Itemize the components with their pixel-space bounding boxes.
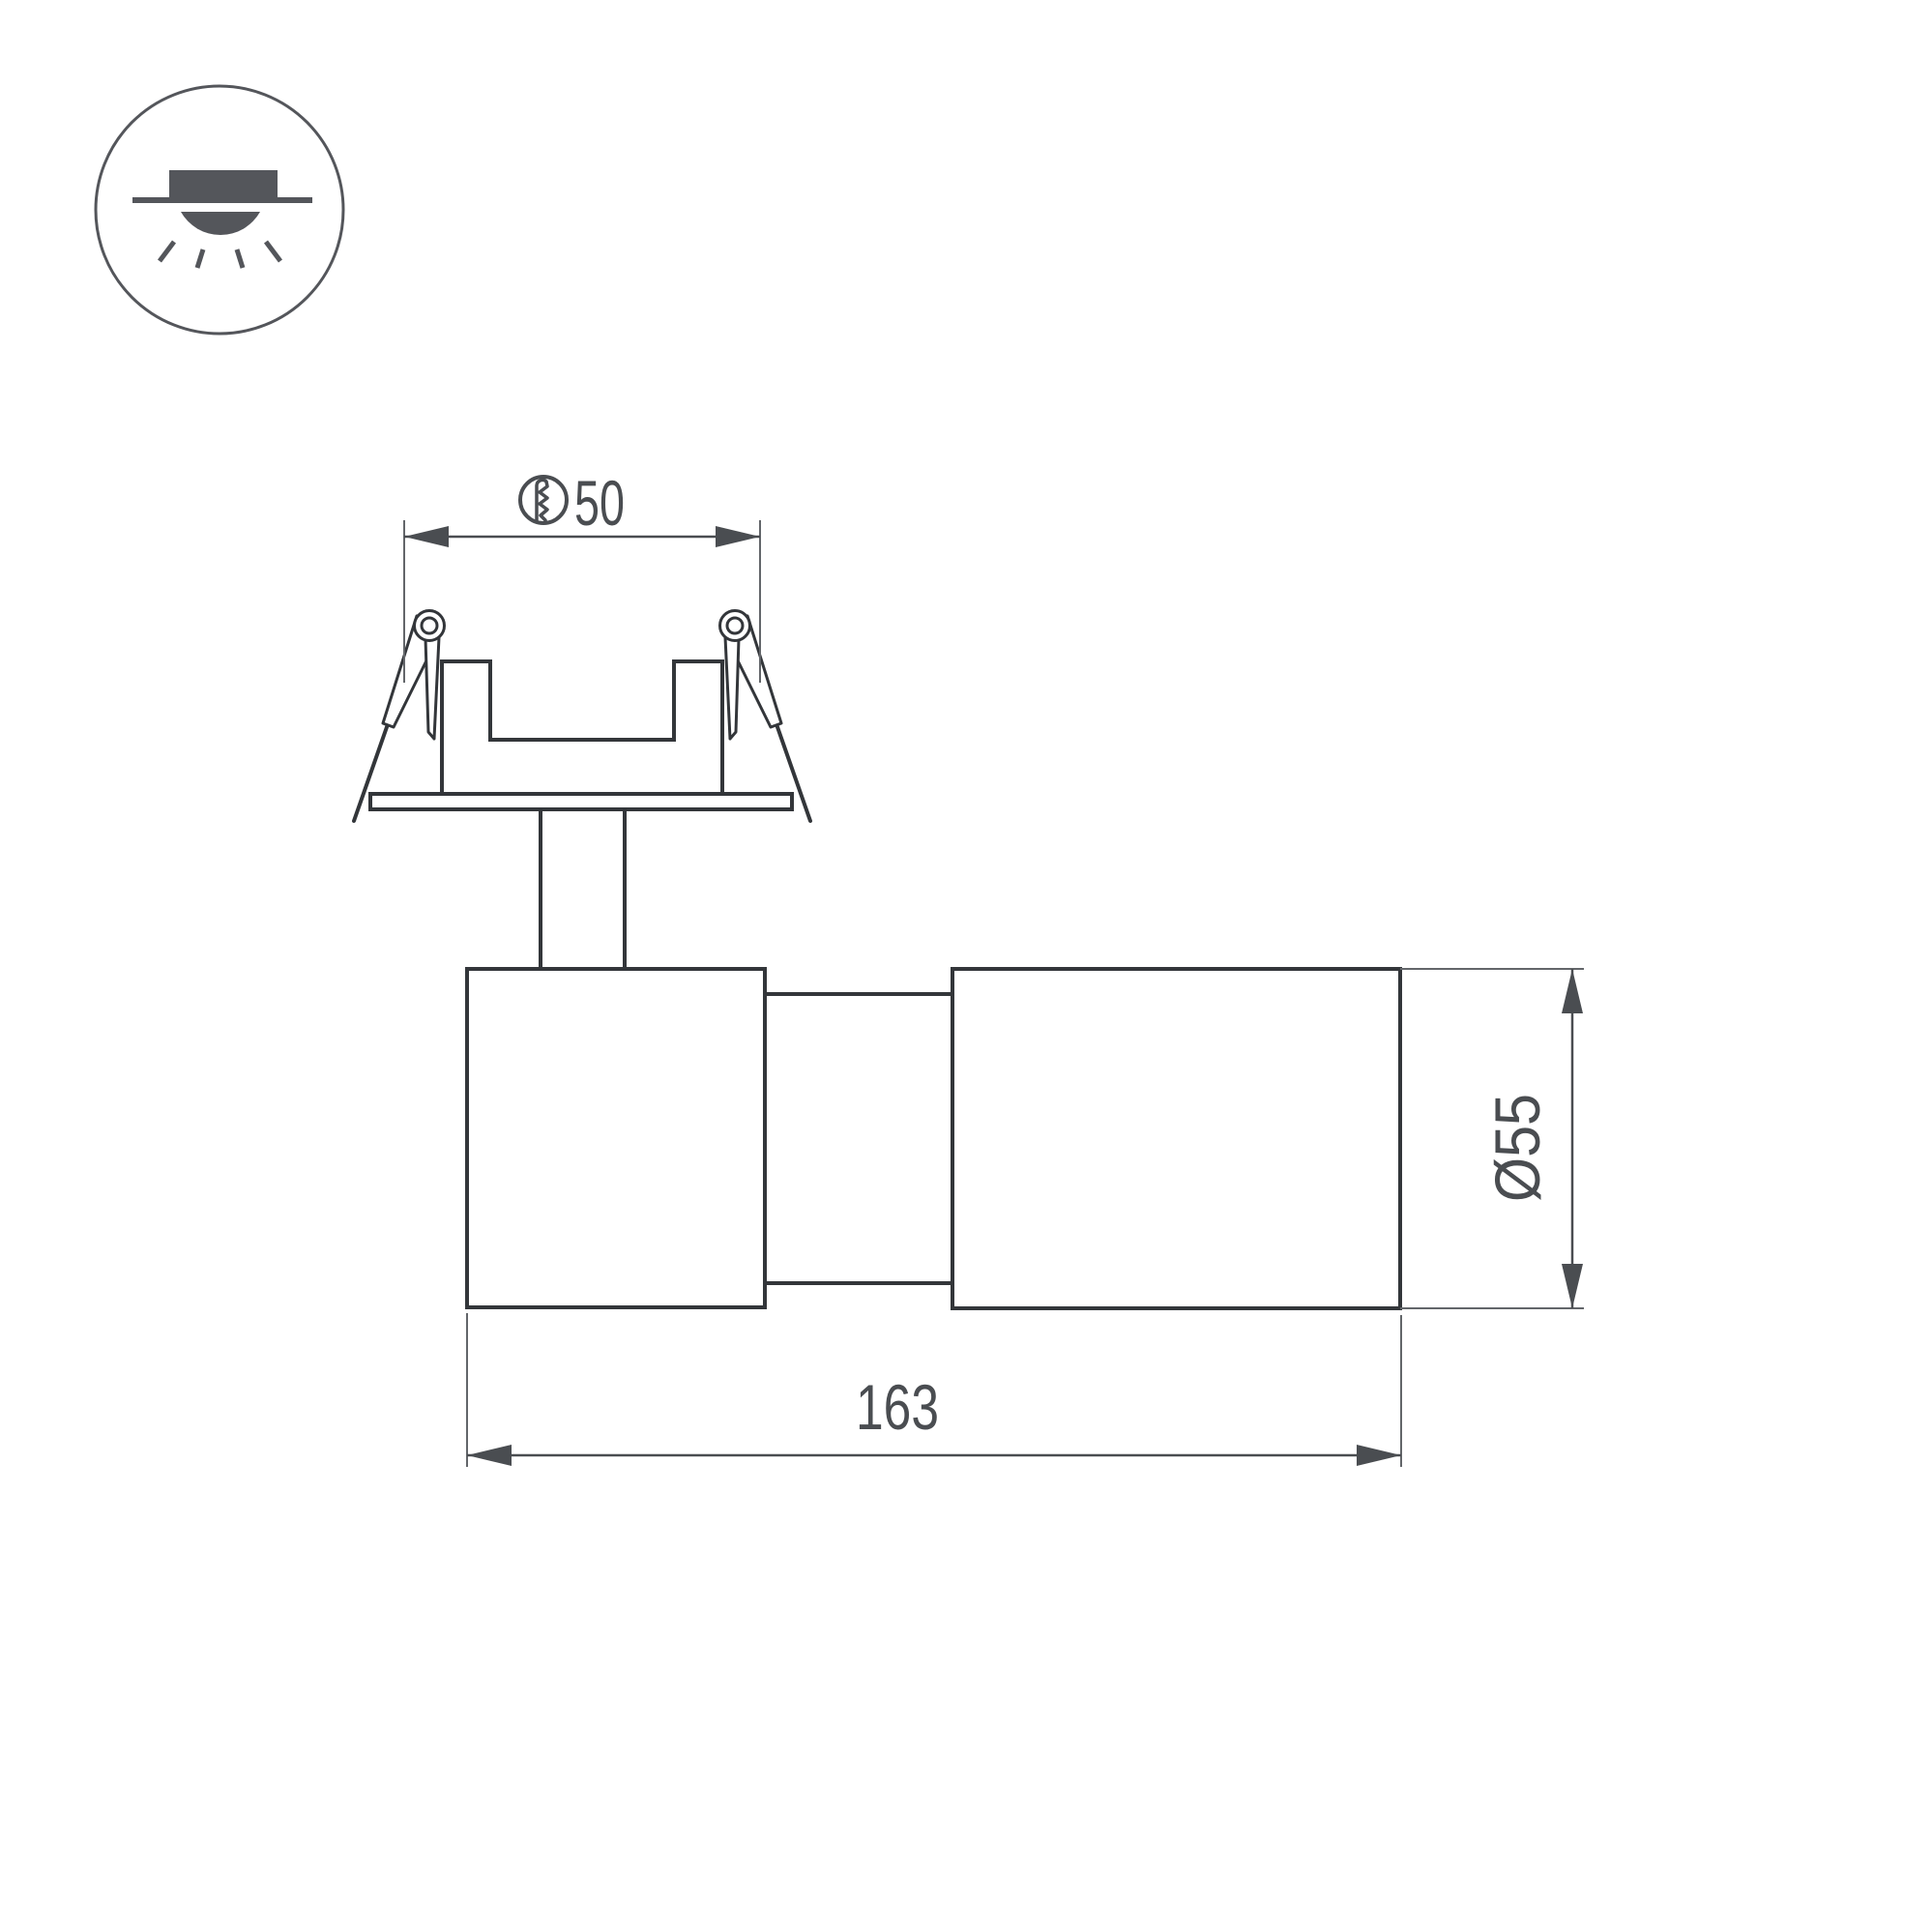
icon-badge-circle	[96, 86, 343, 334]
technical-drawing-canvas: 50 Ø55 163	[0, 0, 1932, 1932]
spring-clip-right	[720, 611, 811, 822]
icon-ceiling-line	[132, 197, 312, 203]
clip-inner-leg	[425, 637, 439, 739]
length-value-label: 163	[856, 1371, 939, 1443]
arrowhead-left-icon	[467, 1445, 512, 1466]
luminaire-side-view	[354, 611, 1400, 1309]
clip-pivot-hole	[727, 618, 743, 633]
light-ray-icon	[197, 249, 203, 268]
body-rear-section	[467, 969, 765, 1307]
recessed-downlight-icon	[96, 86, 343, 334]
clip-pivot-hole	[422, 618, 437, 633]
arrowhead-right-icon	[716, 526, 760, 547]
hole-saw-key-shape	[537, 480, 547, 522]
light-ray-icon	[237, 249, 243, 268]
arrowhead-left-icon	[404, 526, 449, 547]
arrowhead-up-icon	[1562, 969, 1583, 1013]
drawing-page: 50 Ø55 163	[0, 0, 1932, 1932]
diameter-value-label: Ø55	[1481, 1094, 1553, 1202]
mounting-cup-profile	[442, 661, 722, 794]
cutout-value-label: 50	[574, 467, 625, 539]
swivel-stem	[541, 809, 625, 970]
spring-clip-left	[354, 611, 445, 822]
icon-recessed-housing	[169, 170, 278, 199]
clip-inner-leg	[725, 637, 739, 739]
light-ray-icon	[160, 242, 174, 261]
dimension-length-163: 163	[467, 1313, 1401, 1467]
trim-ring-flange	[370, 794, 792, 809]
icon-light-rays	[160, 242, 280, 268]
body-joint-section	[765, 994, 952, 1283]
light-ray-icon	[266, 242, 280, 261]
arrowhead-down-icon	[1562, 1264, 1583, 1308]
dimension-cutout-50: 50	[404, 467, 760, 683]
dimension-diameter-55: Ø55	[1400, 969, 1584, 1308]
hole-saw-icon	[520, 477, 567, 523]
icon-lamp-dome	[181, 212, 260, 235]
arrowhead-right-icon	[1357, 1445, 1401, 1466]
body-front-section	[952, 969, 1400, 1308]
